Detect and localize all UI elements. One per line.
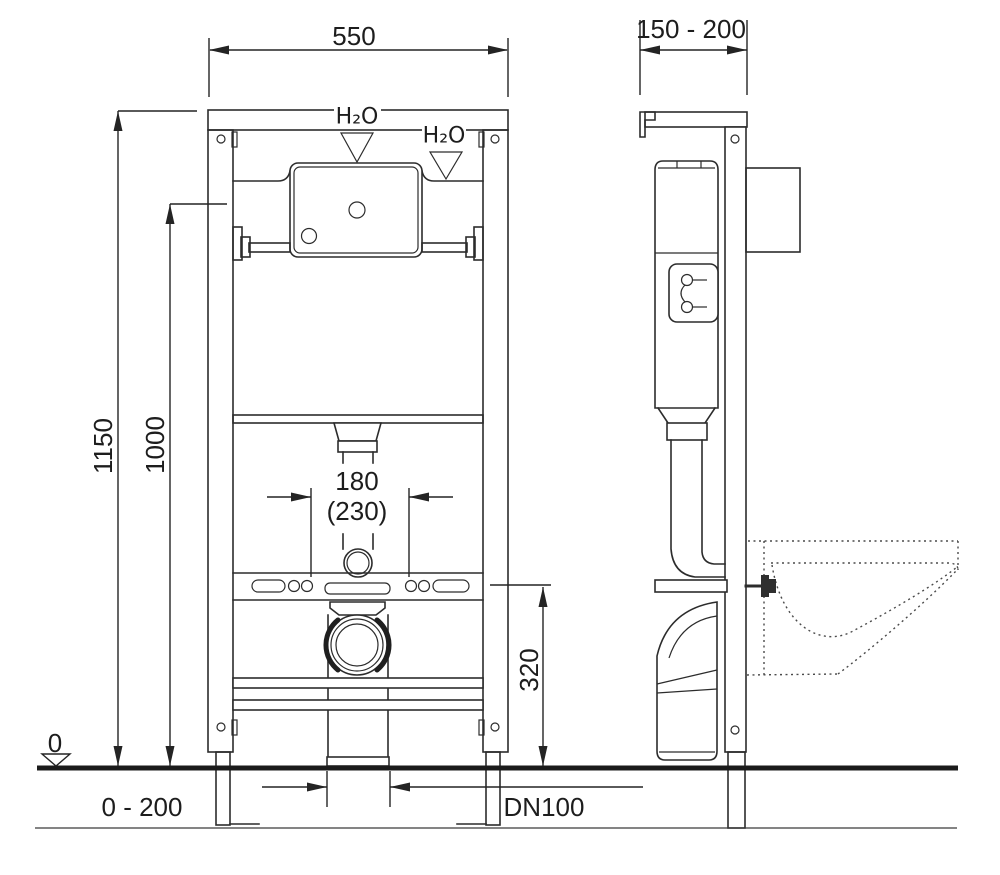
left-foot xyxy=(216,752,230,825)
screw-hole-icon xyxy=(491,135,499,143)
bowl-mounting xyxy=(655,575,776,597)
dim-outlet-height-320: 320 xyxy=(490,585,551,766)
pipe-coupling xyxy=(667,423,707,440)
screw-hole-icon xyxy=(217,135,225,143)
dim-width-550: 550 xyxy=(209,21,508,97)
dim-upper-height-label: 1000 xyxy=(140,416,170,474)
wall-bracket-box xyxy=(746,168,800,252)
mounting-bolt-icon xyxy=(761,575,769,597)
right-foot xyxy=(486,752,500,825)
drain-bracket xyxy=(330,602,385,615)
dim-depth-150-200: 150 - 200 xyxy=(636,14,747,95)
dim-drain-dn100: DN100 xyxy=(262,771,643,822)
support-rod xyxy=(249,243,290,252)
water-supply-alt-label: H₂O xyxy=(423,124,466,149)
frame-post-side xyxy=(725,127,746,828)
left-post xyxy=(208,130,233,752)
datum-level: 0 xyxy=(42,728,70,766)
drain-flange xyxy=(327,757,389,766)
lower-crossbar xyxy=(233,678,483,688)
water-level-triangle-icon xyxy=(430,152,462,179)
dim-center-spacing-label: 180 xyxy=(335,466,378,496)
drain-elbow-side xyxy=(657,602,717,760)
screw-hole-icon xyxy=(217,723,225,731)
wall-hook-icon xyxy=(640,112,655,137)
dim-upper-height-1000: 1000 xyxy=(140,204,227,766)
dim-depth-label: 150 - 200 xyxy=(636,14,746,44)
foot-adjustment-label: 0 - 200 xyxy=(102,792,183,822)
right-post xyxy=(483,130,508,752)
screw-hole-icon xyxy=(491,723,499,731)
cistern-side xyxy=(655,161,718,440)
side-foot xyxy=(728,752,745,828)
support-rod xyxy=(422,243,467,252)
wc-frame-installation-drawing: 550 150 - 200 1150 1000 xyxy=(0,0,1000,875)
dim-center-spacing-alt-label: (230) xyxy=(327,496,388,526)
dim-width-label: 550 xyxy=(332,21,375,51)
flush-pipe-side xyxy=(671,440,725,577)
water-level-triangle-icon xyxy=(341,133,373,162)
side-view xyxy=(640,112,958,828)
toilet-bowl-outline xyxy=(747,541,958,676)
flush-valve-panel xyxy=(669,264,718,322)
drain-front xyxy=(233,602,483,766)
mounting-slot xyxy=(325,583,390,594)
mounting-slot xyxy=(433,580,469,592)
foot-adjustment: 0 - 200 xyxy=(102,792,183,822)
drawing-canvas: 550 150 - 200 1150 1000 xyxy=(0,0,1000,875)
mounting-slot xyxy=(252,580,285,592)
mounting-rod xyxy=(655,580,727,592)
water-supply-label: H₂O xyxy=(336,105,379,130)
mid-crossbar xyxy=(233,415,483,423)
dim-outlet-height-label: 320 xyxy=(514,648,544,691)
lower-crossbar xyxy=(233,700,483,710)
drain-diameter-label: DN100 xyxy=(504,792,585,822)
dim-total-height-label: 1150 xyxy=(88,418,118,474)
